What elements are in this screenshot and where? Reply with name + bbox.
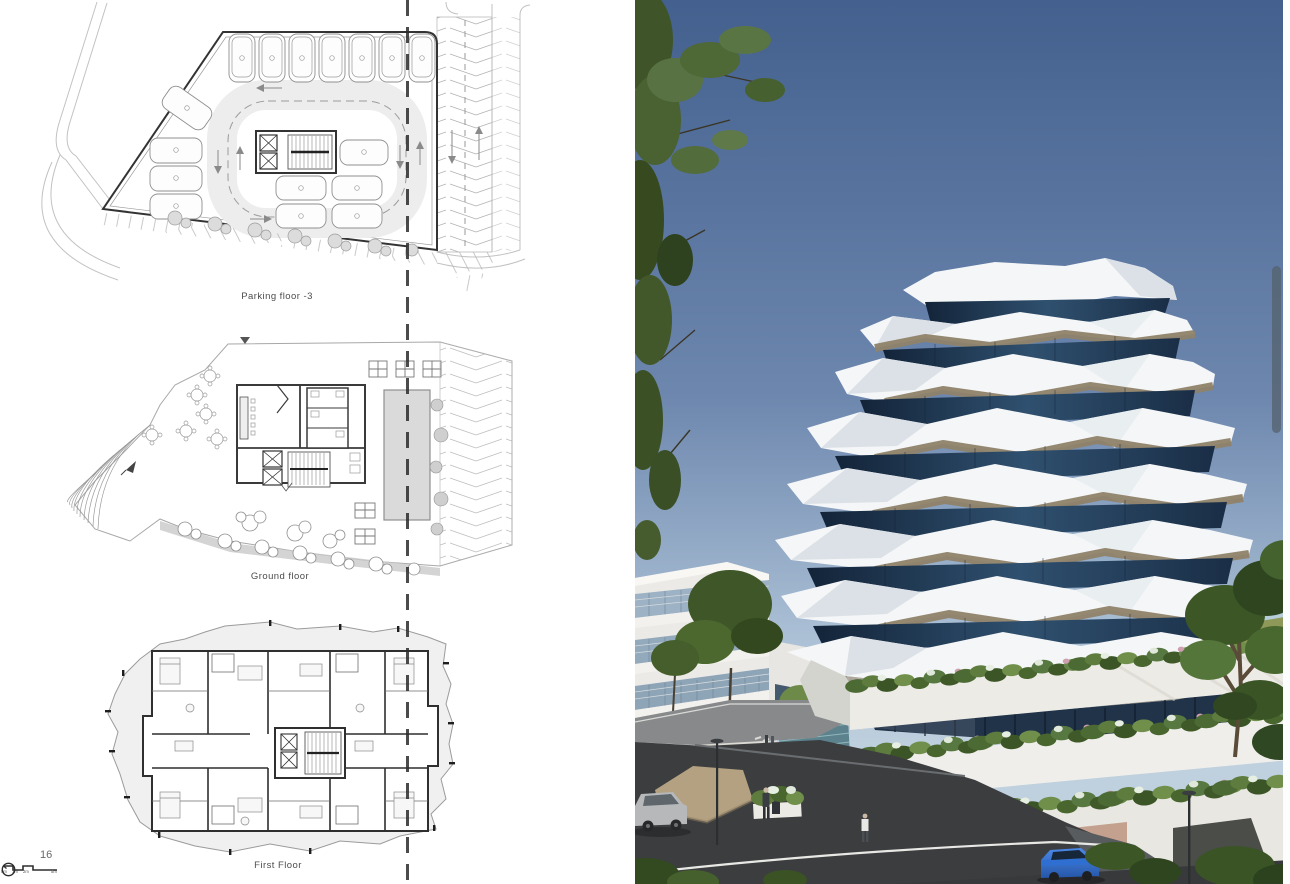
- page-gutter: [1283, 0, 1290, 884]
- building-render-photo: [635, 0, 1290, 884]
- section-line: [406, 0, 409, 884]
- first-floor-core: [275, 728, 345, 778]
- north-indicator-icon: [0, 861, 17, 878]
- document-page: Parking floor -3 Ground floor First Floo…: [0, 0, 635, 884]
- first-plan-label: First Floor: [178, 860, 378, 871]
- top-marker: [240, 337, 250, 344]
- parking-stalls-left: [150, 138, 202, 219]
- scrollbar-thumb[interactable]: [1272, 266, 1281, 433]
- parking-core: [256, 131, 336, 173]
- screenshot-canvas: Parking floor -3 Ground floor First Floo…: [0, 0, 1290, 884]
- svg-text:5m: 5m: [51, 869, 57, 874]
- parking-stalls-top: [229, 34, 435, 82]
- parking-floor-plan: [0, 0, 635, 305]
- svg-text:2m: 2m: [23, 869, 29, 874]
- first-floor-plan: [0, 606, 635, 878]
- page-number: 16: [40, 849, 52, 861]
- ground-plan-label: Ground floor: [180, 571, 380, 582]
- ground-building: [237, 385, 365, 491]
- parking-plan-label: Parking floor -3: [177, 291, 377, 302]
- ground-floor-plan: [0, 333, 635, 585]
